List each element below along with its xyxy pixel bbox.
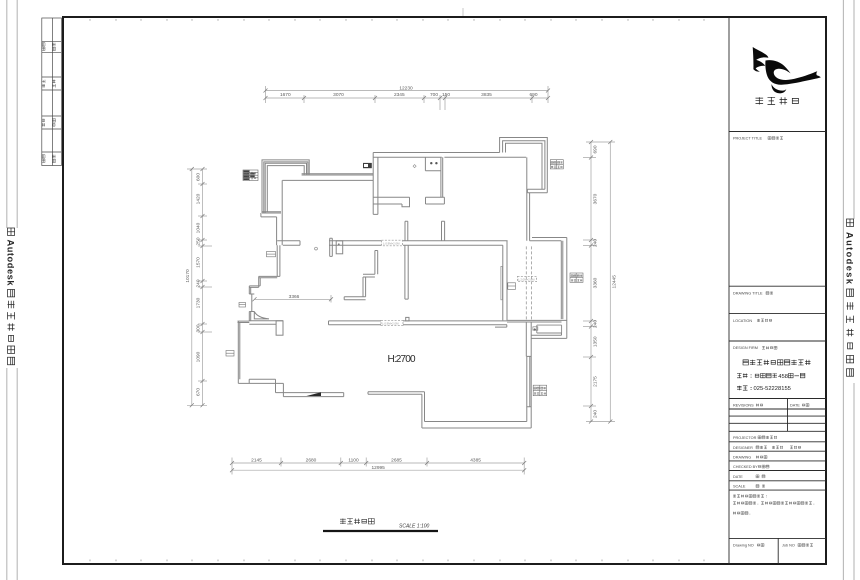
svg-text:1350: 1350 — [593, 336, 599, 347]
svg-text:240: 240 — [593, 410, 599, 418]
svg-text:SCALE: SCALE — [733, 485, 746, 489]
svg-text:DRAWING TITLE: DRAWING TITLE — [733, 292, 763, 296]
svg-text:H:2700: H:2700 — [388, 354, 416, 365]
svg-text:3360: 3360 — [593, 277, 599, 288]
svg-text:250: 250 — [196, 237, 202, 245]
svg-text:10170: 10170 — [185, 269, 191, 283]
svg-text:PROJECT TITLE: PROJECT TITLE — [733, 137, 762, 141]
svg-text:690: 690 — [529, 92, 537, 98]
svg-text:3835: 3835 — [481, 92, 492, 98]
svg-text:DESIGNER: DESIGNER — [733, 446, 753, 450]
svg-text:DATE: DATE — [733, 475, 743, 479]
svg-text:DESIGN FIRM: DESIGN FIRM — [733, 346, 758, 350]
svg-text:2345: 2345 — [394, 92, 405, 98]
svg-text:Drawing NO: Drawing NO — [733, 544, 754, 548]
svg-text:690: 690 — [593, 145, 599, 153]
svg-text:240: 240 — [593, 239, 599, 247]
svg-text:12230: 12230 — [399, 85, 413, 91]
svg-text:240: 240 — [196, 279, 202, 287]
svg-text:1420: 1420 — [196, 193, 202, 204]
svg-text:DRAWING: DRAWING — [733, 456, 751, 460]
svg-text:3670: 3670 — [593, 193, 599, 204]
svg-text:PROJECTOR: PROJECTOR — [733, 436, 757, 440]
svg-text:150: 150 — [442, 92, 450, 98]
svg-text:2145: 2145 — [251, 457, 262, 463]
svg-text:DATE: DATE — [790, 404, 800, 408]
svg-text:Autodesk: Autodesk — [845, 232, 855, 285]
svg-text:3070: 3070 — [333, 92, 344, 98]
svg-text:458: 458 — [778, 374, 788, 380]
svg-text:1570: 1570 — [196, 257, 202, 268]
svg-text:Job NO: Job NO — [782, 544, 795, 548]
svg-text:4385: 4385 — [470, 457, 481, 463]
svg-text:2175: 2175 — [593, 376, 599, 387]
svg-text:LOCATION: LOCATION — [733, 319, 752, 323]
svg-text:12445: 12445 — [612, 275, 618, 289]
svg-text:REVISIONS: REVISIONS — [733, 404, 754, 408]
svg-text:1730: 1730 — [196, 297, 202, 308]
svg-text:1670: 1670 — [280, 92, 291, 98]
svg-text:3366: 3366 — [289, 294, 300, 300]
svg-text:600: 600 — [196, 173, 202, 181]
svg-text:670: 670 — [196, 388, 202, 396]
svg-text:700: 700 — [430, 92, 438, 98]
svg-text:CHECKED BY: CHECKED BY — [733, 465, 758, 469]
svg-text:SCALE 1:100: SCALE 1:100 — [399, 524, 430, 530]
svg-text:240: 240 — [593, 320, 599, 328]
svg-text:2680: 2680 — [306, 457, 317, 463]
svg-text:1040: 1040 — [196, 222, 202, 233]
svg-text:1090: 1090 — [196, 351, 202, 362]
svg-text:L:0.9M×2.0M: L:0.9M×2.0M — [382, 322, 399, 326]
svg-text:12995: 12995 — [372, 465, 386, 471]
svg-text:2685: 2685 — [391, 457, 402, 463]
svg-text:1100: 1100 — [348, 457, 359, 463]
svg-text:025-52228155: 025-52228155 — [754, 386, 791, 392]
svg-text:L:0.9M×2.0M: L:0.9M×2.0M — [383, 242, 400, 246]
svg-text:L:2.0M×2.0M: L:2.0M×2.0M — [518, 278, 535, 282]
svg-text:Autodesk: Autodesk — [6, 240, 16, 287]
svg-text:300: 300 — [196, 324, 202, 332]
